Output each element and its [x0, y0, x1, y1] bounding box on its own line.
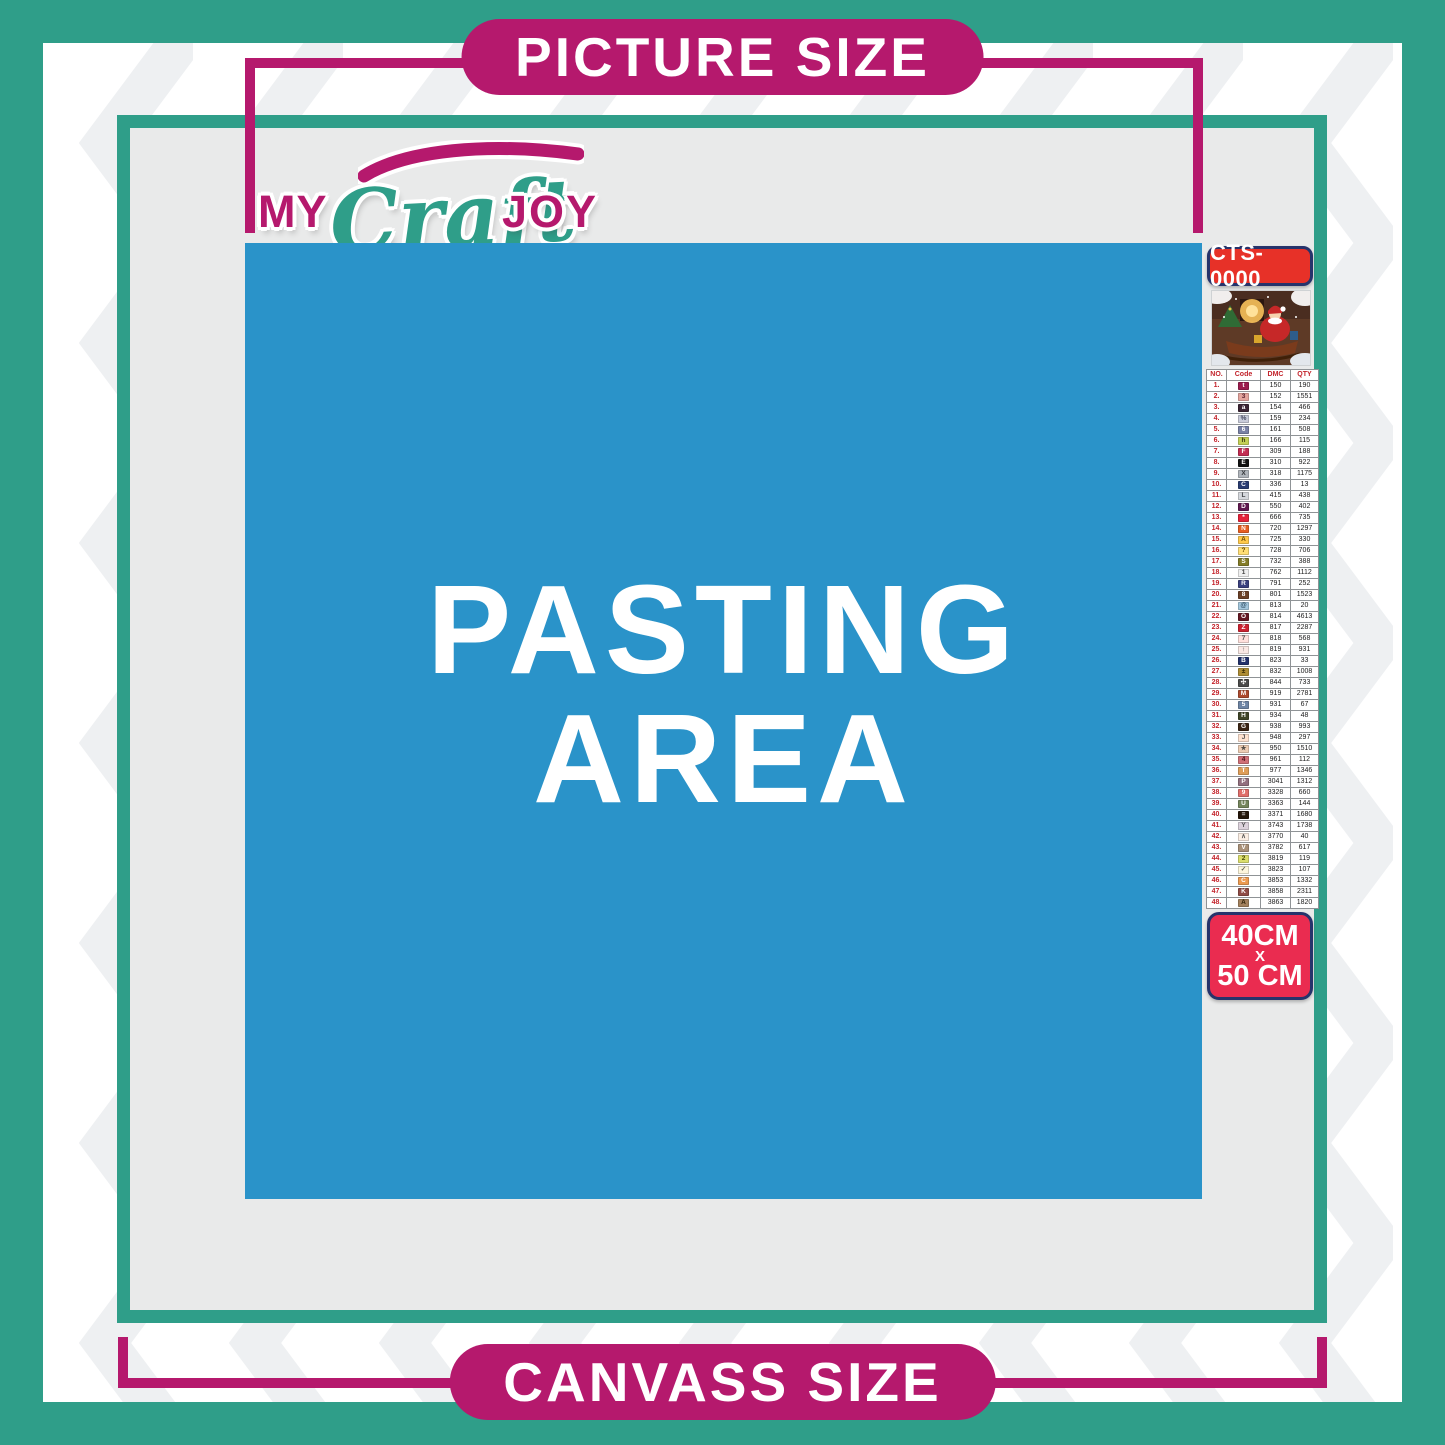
legend-row: 19.R791252 [1207, 579, 1319, 590]
legend-quantity: 1346 [1291, 766, 1319, 777]
legend-dmc-code: 3041 [1261, 777, 1291, 788]
legend-quantity: 20 [1291, 601, 1319, 612]
legend-row-number: 45. [1207, 865, 1227, 876]
legend-symbol-swatch: % [1238, 415, 1249, 423]
legend-dmc-code: 161 [1261, 425, 1291, 436]
legend-symbol-swatch: t [1238, 382, 1249, 390]
legend-quantity: 13 [1291, 480, 1319, 491]
legend-quantity: 1332 [1291, 876, 1319, 887]
legend-quantity: 568 [1291, 634, 1319, 645]
legend-quantity: 1112 [1291, 568, 1319, 579]
legend-row-number: 7. [1207, 447, 1227, 458]
legend-quantity: 1008 [1291, 667, 1319, 678]
legend-dmc-code: 310 [1261, 458, 1291, 469]
legend-symbol-cell: a [1227, 403, 1261, 414]
legend-symbol-swatch: G [1238, 723, 1249, 731]
legend-dmc-code: 166 [1261, 436, 1291, 447]
legend-row: 6.h166115 [1207, 436, 1319, 447]
legend-dmc-code: 3863 [1261, 898, 1291, 909]
legend-row: 41.Y37431738 [1207, 821, 1319, 832]
legend-row-number: 29. [1207, 689, 1227, 700]
legend-dmc-code: 919 [1261, 689, 1291, 700]
legend-symbol-swatch: P [1238, 778, 1249, 786]
legend-row: 38.93328660 [1207, 788, 1319, 799]
legend-row-number: 21. [1207, 601, 1227, 612]
legend-symbol-swatch: 7 [1238, 635, 1249, 643]
legend-quantity: 115 [1291, 436, 1319, 447]
legend-symbol-swatch: Z [1238, 624, 1249, 632]
legend-symbol-cell: ? [1227, 546, 1261, 557]
legend-row-number: 30. [1207, 700, 1227, 711]
legend-row-number: 44. [1207, 854, 1227, 865]
legend-quantity: 330 [1291, 535, 1319, 546]
legend-symbol-swatch: Y [1238, 822, 1249, 830]
legend-quantity: 297 [1291, 733, 1319, 744]
picture-size-bracket-right-line [1193, 58, 1203, 233]
legend-dmc-code: 728 [1261, 546, 1291, 557]
legend-row: 28.✣844733 [1207, 678, 1319, 689]
legend-quantity: 438 [1291, 491, 1319, 502]
legend-header-row: NO.CodeDMCQTY [1207, 370, 1319, 381]
legend-row: 34.★9501510 [1207, 744, 1319, 755]
legend-symbol-swatch: ✣ [1238, 679, 1249, 687]
legend-symbol-cell: U [1227, 799, 1261, 810]
legend-row-number: 22. [1207, 612, 1227, 623]
legend-row-number: 5. [1207, 425, 1227, 436]
legend-quantity: 993 [1291, 722, 1319, 733]
logo-text-joy: JOY [502, 186, 598, 238]
legend-dmc-code: 3853 [1261, 876, 1291, 887]
legend-symbol-swatch: D [1238, 503, 1249, 511]
legend-row: 20.88011523 [1207, 590, 1319, 601]
legend-symbol-cell: H [1227, 711, 1261, 722]
legend-row: 35.4961112 [1207, 755, 1319, 766]
legend-quantity: 2287 [1291, 623, 1319, 634]
legend-row-number: 1. [1207, 381, 1227, 392]
legend-symbol-swatch: 4 [1238, 756, 1249, 764]
legend-row: 43.V3782617 [1207, 843, 1319, 854]
legend-row-number: 6. [1207, 436, 1227, 447]
legend-dmc-code: 823 [1261, 656, 1291, 667]
legend-row-number: 38. [1207, 788, 1227, 799]
legend-dmc-code: 961 [1261, 755, 1291, 766]
legend-row-number: 14. [1207, 524, 1227, 535]
design-code-badge: CTS-0000 [1207, 246, 1313, 286]
legend-row-number: 11. [1207, 491, 1227, 502]
legend-row: 3.a154466 [1207, 403, 1319, 414]
legend-row: 9.X3181175 [1207, 469, 1319, 480]
legend-symbol-cell: O [1227, 612, 1261, 623]
legend-symbol-cell: M [1227, 689, 1261, 700]
legend-symbol-swatch: J [1238, 734, 1249, 742]
legend-row-number: 3. [1207, 403, 1227, 414]
legend-symbol-swatch: ± [1238, 668, 1249, 676]
legend-row-number: 10. [1207, 480, 1227, 491]
legend-quantity: 234 [1291, 414, 1319, 425]
legend-dmc-code: 813 [1261, 601, 1291, 612]
legend-row-number: 2. [1207, 392, 1227, 403]
legend-row: 17.S732388 [1207, 557, 1319, 568]
legend-dmc-code: 550 [1261, 502, 1291, 513]
legend-dmc-code: 154 [1261, 403, 1291, 414]
legend-row-number: 4. [1207, 414, 1227, 425]
legend-row: 10.C33613 [1207, 480, 1319, 491]
legend-dmc-code: 3819 [1261, 854, 1291, 865]
legend-symbol-cell: Y [1227, 821, 1261, 832]
legend-row-number: 28. [1207, 678, 1227, 689]
legend-symbol-swatch: A [1238, 899, 1249, 907]
canvass-size-bracket-right-line [1317, 1337, 1327, 1388]
legend-quantity: 706 [1291, 546, 1319, 557]
legend-quantity: 2311 [1291, 887, 1319, 898]
legend-row: 40.=33711680 [1207, 810, 1319, 821]
legend-symbol-swatch: 6 [1238, 426, 1249, 434]
legend-row-number: 8. [1207, 458, 1227, 469]
legend-symbol-cell: ± [1227, 667, 1261, 678]
legend-symbol-cell: * [1227, 513, 1261, 524]
legend-symbol-swatch: 3 [1238, 393, 1249, 401]
canvass-size-label: CANVASS SIZE [503, 1350, 941, 1414]
legend-symbol-swatch: M [1238, 690, 1249, 698]
canvas-size-height: 50 CM [1217, 963, 1302, 990]
legend-row: 12.D550402 [1207, 502, 1319, 513]
legend-row-number: 35. [1207, 755, 1227, 766]
legend-symbol-swatch: ✓ [1238, 866, 1249, 874]
legend-row: 48.A38631820 [1207, 898, 1319, 909]
legend-dmc-code: 309 [1261, 447, 1291, 458]
legend-symbol-swatch: V [1238, 844, 1249, 852]
legend-symbol-swatch: a [1238, 404, 1249, 412]
legend-symbol-swatch: 9 [1238, 789, 1249, 797]
legend-quantity: 1175 [1291, 469, 1319, 480]
legend-quantity: 190 [1291, 381, 1319, 392]
legend-row: 7.F309188 [1207, 447, 1319, 458]
legend-row-number: 33. [1207, 733, 1227, 744]
legend-row: 29.M9192781 [1207, 689, 1319, 700]
legend-dmc-code: 732 [1261, 557, 1291, 568]
legend-quantity: 931 [1291, 645, 1319, 656]
legend-dmc-code: 152 [1261, 392, 1291, 403]
legend-symbol-swatch: * [1238, 514, 1249, 522]
legend-quantity: 1680 [1291, 810, 1319, 821]
legend-quantity: 48 [1291, 711, 1319, 722]
canvass-size-banner: CANVASS SIZE [449, 1344, 995, 1420]
legend-dmc-code: 3743 [1261, 821, 1291, 832]
legend-quantity: 1297 [1291, 524, 1319, 535]
legend-quantity: 1551 [1291, 392, 1319, 403]
legend-symbol-cell: C [1227, 480, 1261, 491]
legend-dmc-code: 336 [1261, 480, 1291, 491]
legend-symbol-swatch: C [1238, 877, 1249, 885]
legend-symbol-swatch: A [1238, 536, 1249, 544]
legend-symbol-swatch: H [1238, 712, 1249, 720]
kit-preview-image [1212, 291, 1310, 365]
legend-row: 46.C38531332 [1207, 876, 1319, 887]
legend-row-number: 31. [1207, 711, 1227, 722]
legend-dmc-code: 948 [1261, 733, 1291, 744]
pasting-area-line1: PASTING [427, 566, 1020, 695]
canvass-size-bracket-left-line [118, 1337, 128, 1388]
legend-symbol-cell: 1 [1227, 568, 1261, 579]
legend-row-number: 24. [1207, 634, 1227, 645]
legend-dmc-code: 762 [1261, 568, 1291, 579]
legend-symbol-cell: t [1227, 381, 1261, 392]
legend-symbol-swatch: E [1238, 459, 1249, 467]
legend-row: 44.23819119 [1207, 854, 1319, 865]
legend-symbol-cell: ✣ [1227, 678, 1261, 689]
legend-symbol-swatch: F [1238, 448, 1249, 456]
legend-symbol-swatch: B [1238, 657, 1249, 665]
legend-symbol-cell: G [1227, 722, 1261, 733]
legend-row: 26.B82333 [1207, 656, 1319, 667]
legend-quantity: 402 [1291, 502, 1319, 513]
legend-symbol-cell: 4 [1227, 755, 1261, 766]
legend-dmc-code: 791 [1261, 579, 1291, 590]
legend-symbol-swatch: S [1238, 558, 1249, 566]
legend-symbol-cell: K [1227, 887, 1261, 898]
picture-size-bracket-left-line [245, 58, 255, 233]
legend-symbol-cell: P [1227, 777, 1261, 788]
legend-dmc-code: 950 [1261, 744, 1291, 755]
legend-row: 14.N7201297 [1207, 524, 1319, 535]
legend-symbol-swatch: ★ [1238, 745, 1249, 753]
legend-row-number: 15. [1207, 535, 1227, 546]
legend-symbol-cell: @ [1227, 601, 1261, 612]
legend-symbol-cell: = [1227, 810, 1261, 821]
legend-dmc-code: 720 [1261, 524, 1291, 535]
legend-row-number: 27. [1207, 667, 1227, 678]
legend-row-number: 34. [1207, 744, 1227, 755]
legend-symbol-swatch: ↑ [1238, 646, 1249, 654]
legend-row-number: 46. [1207, 876, 1227, 887]
legend-row-number: 9. [1207, 469, 1227, 480]
legend-symbol-cell: N [1227, 524, 1261, 535]
legend-symbol-swatch: U [1238, 800, 1249, 808]
legend-row-number: 40. [1207, 810, 1227, 821]
legend-symbol-swatch: X [1238, 470, 1249, 478]
logo-swoosh-stroke [358, 140, 584, 184]
legend-dmc-code: 819 [1261, 645, 1291, 656]
legend-row: 27.±8321008 [1207, 667, 1319, 678]
diamond-painting-size-guide: PICTURE SIZE CANVASS SIZE MY Craft JOY P… [0, 0, 1445, 1445]
legend-symbol-cell: E [1227, 458, 1261, 469]
legend-quantity: 1738 [1291, 821, 1319, 832]
legend-dmc-code: 832 [1261, 667, 1291, 678]
legend-symbol-swatch: T [1238, 767, 1249, 775]
legend-row-number: 12. [1207, 502, 1227, 513]
canvas-size-badge: 40CM X 50 CM [1207, 912, 1313, 1000]
pasting-area-line2: AREA [427, 695, 1020, 824]
legend-row-number: 17. [1207, 557, 1227, 568]
legend-symbol-swatch: 5 [1238, 701, 1249, 709]
legend-row: 2.31521551 [1207, 392, 1319, 403]
legend-symbol-cell: 2 [1227, 854, 1261, 865]
legend-quantity: 40 [1291, 832, 1319, 843]
legend-row: 30.593167 [1207, 700, 1319, 711]
canvas-size-width: 40CM [1221, 923, 1298, 950]
legend-symbol-cell: 7 [1227, 634, 1261, 645]
legend-row-number: 48. [1207, 898, 1227, 909]
legend-symbol-cell: B [1227, 656, 1261, 667]
legend-row: 36.T9771346 [1207, 766, 1319, 777]
legend-symbol-cell: 5 [1227, 700, 1261, 711]
legend-symbol-cell: ★ [1227, 744, 1261, 755]
legend-row-number: 26. [1207, 656, 1227, 667]
legend-symbol-cell: T [1227, 766, 1261, 777]
legend-dmc-code: 818 [1261, 634, 1291, 645]
legend-dmc-code: 3782 [1261, 843, 1291, 854]
legend-quantity: 33 [1291, 656, 1319, 667]
legend-symbol-cell: S [1227, 557, 1261, 568]
legend-row: 31.H93448 [1207, 711, 1319, 722]
legend-row-number: 18. [1207, 568, 1227, 579]
legend-symbol-swatch: N [1238, 525, 1249, 533]
legend-row: 18.17621112 [1207, 568, 1319, 579]
legend-quantity: 735 [1291, 513, 1319, 524]
legend-symbol-swatch: ? [1238, 547, 1249, 555]
legend-row-number: 20. [1207, 590, 1227, 601]
legend-row-number: 41. [1207, 821, 1227, 832]
legend-dmc-code: 817 [1261, 623, 1291, 634]
legend-dmc-code: 814 [1261, 612, 1291, 623]
legend-col-header: QTY [1291, 370, 1319, 381]
legend-row: 24.7818568 [1207, 634, 1319, 645]
legend-row-number: 32. [1207, 722, 1227, 733]
legend-row: 37.P30411312 [1207, 777, 1319, 788]
legend-row-number: 42. [1207, 832, 1227, 843]
legend-symbol-cell: R [1227, 579, 1261, 590]
legend-symbol-swatch: C [1238, 481, 1249, 489]
legend-quantity: 4613 [1291, 612, 1319, 623]
legend-quantity: 144 [1291, 799, 1319, 810]
legend-row-number: 25. [1207, 645, 1227, 656]
legend-dmc-code: 3770 [1261, 832, 1291, 843]
legend-row: 5.6161508 [1207, 425, 1319, 436]
legend-row: 16.?728706 [1207, 546, 1319, 557]
legend-dmc-code: 725 [1261, 535, 1291, 546]
legend-row: 11.L415438 [1207, 491, 1319, 502]
legend-row: 32.G938993 [1207, 722, 1319, 733]
legend-symbol-cell: X [1227, 469, 1261, 480]
legend-symbol-swatch: 8 [1238, 591, 1249, 599]
legend-row-number: 13. [1207, 513, 1227, 524]
legend-row: 1.t150190 [1207, 381, 1319, 392]
legend-symbol-cell: A [1227, 535, 1261, 546]
legend-quantity: 252 [1291, 579, 1319, 590]
legend-dmc-code: 3371 [1261, 810, 1291, 821]
legend-row: 33.J948297 [1207, 733, 1319, 744]
legend-symbol-swatch: K [1238, 888, 1249, 896]
picture-size-banner: PICTURE SIZE [461, 19, 984, 95]
legend-row-number: 47. [1207, 887, 1227, 898]
legend-symbol-cell: ↑ [1227, 645, 1261, 656]
legend-dmc-code: 159 [1261, 414, 1291, 425]
legend-row: 8.E310922 [1207, 458, 1319, 469]
legend-row-number: 19. [1207, 579, 1227, 590]
legend-quantity: 107 [1291, 865, 1319, 876]
legend-quantity: 2781 [1291, 689, 1319, 700]
legend-symbol-swatch: 1 [1238, 569, 1249, 577]
legend-dmc-code: 3858 [1261, 887, 1291, 898]
legend-dmc-code: 415 [1261, 491, 1291, 502]
legend-symbol-cell: C [1227, 876, 1261, 887]
legend-dmc-code: 3328 [1261, 788, 1291, 799]
legend-symbol-cell: D [1227, 502, 1261, 513]
legend-symbol-cell: 6 [1227, 425, 1261, 436]
legend-quantity: 922 [1291, 458, 1319, 469]
legend-symbol-cell: F [1227, 447, 1261, 458]
legend-dmc-code: 318 [1261, 469, 1291, 480]
legend-col-header: DMC [1261, 370, 1291, 381]
legend-symbol-swatch: ∧ [1238, 833, 1249, 841]
legend-symbol-cell: 8 [1227, 590, 1261, 601]
legend-symbol-cell: 3 [1227, 392, 1261, 403]
logo-text-my: MY [258, 186, 328, 238]
legend-row: 42.∧377040 [1207, 832, 1319, 843]
legend-table: NO.CodeDMCQTY 1.t1501902.315215513.a1544… [1206, 369, 1319, 909]
legend-dmc-code: 801 [1261, 590, 1291, 601]
legend-symbol-swatch: L [1238, 492, 1249, 500]
legend-row: 13.*666735 [1207, 513, 1319, 524]
legend-dmc-code: 938 [1261, 722, 1291, 733]
legend-dmc-code: 931 [1261, 700, 1291, 711]
legend-row: 45.✓3823107 [1207, 865, 1319, 876]
legend-quantity: 733 [1291, 678, 1319, 689]
legend-row: 21.@81320 [1207, 601, 1319, 612]
legend-dmc-code: 934 [1261, 711, 1291, 722]
legend-symbol-cell: h [1227, 436, 1261, 447]
legend-row: 4.%159234 [1207, 414, 1319, 425]
legend-row-number: 16. [1207, 546, 1227, 557]
legend-quantity: 112 [1291, 755, 1319, 766]
legend-dmc-code: 3823 [1261, 865, 1291, 876]
picture-size-label: PICTURE SIZE [515, 25, 930, 89]
kit-preview-art [1212, 291, 1310, 365]
legend-symbol-swatch: @ [1238, 602, 1249, 610]
legend-quantity: 1820 [1291, 898, 1319, 909]
legend-quantity: 466 [1291, 403, 1319, 414]
legend-row: 39.U3363144 [1207, 799, 1319, 810]
legend-quantity: 508 [1291, 425, 1319, 436]
legend-dmc-code: 150 [1261, 381, 1291, 392]
legend-dmc-code: 666 [1261, 513, 1291, 524]
legend-quantity: 67 [1291, 700, 1319, 711]
legend-row-number: 36. [1207, 766, 1227, 777]
legend-dmc-code: 844 [1261, 678, 1291, 689]
legend-symbol-cell: J [1227, 733, 1261, 744]
legend-quantity: 188 [1291, 447, 1319, 458]
legend-symbol-cell: ✓ [1227, 865, 1261, 876]
legend-row: 22.O8144613 [1207, 612, 1319, 623]
legend-quantity: 1510 [1291, 744, 1319, 755]
legend-symbol-swatch: 2 [1238, 855, 1249, 863]
legend-quantity: 660 [1291, 788, 1319, 799]
legend-row: 47.K38582311 [1207, 887, 1319, 898]
legend-quantity: 617 [1291, 843, 1319, 854]
design-code-label: CTS-0000 [1210, 240, 1310, 292]
legend-quantity: 1523 [1291, 590, 1319, 601]
legend-symbol-cell: 9 [1227, 788, 1261, 799]
pasting-area-caption: PASTING AREA [427, 566, 1020, 823]
legend-symbol-swatch: h [1238, 437, 1249, 445]
brand-logo: MY Craft JOY [258, 146, 588, 250]
legend-quantity: 1312 [1291, 777, 1319, 788]
legend-quantity: 119 [1291, 854, 1319, 865]
legend-symbol-cell: % [1227, 414, 1261, 425]
legend-symbol-cell: A [1227, 898, 1261, 909]
legend-quantity: 388 [1291, 557, 1319, 568]
legend-row-number: 39. [1207, 799, 1227, 810]
